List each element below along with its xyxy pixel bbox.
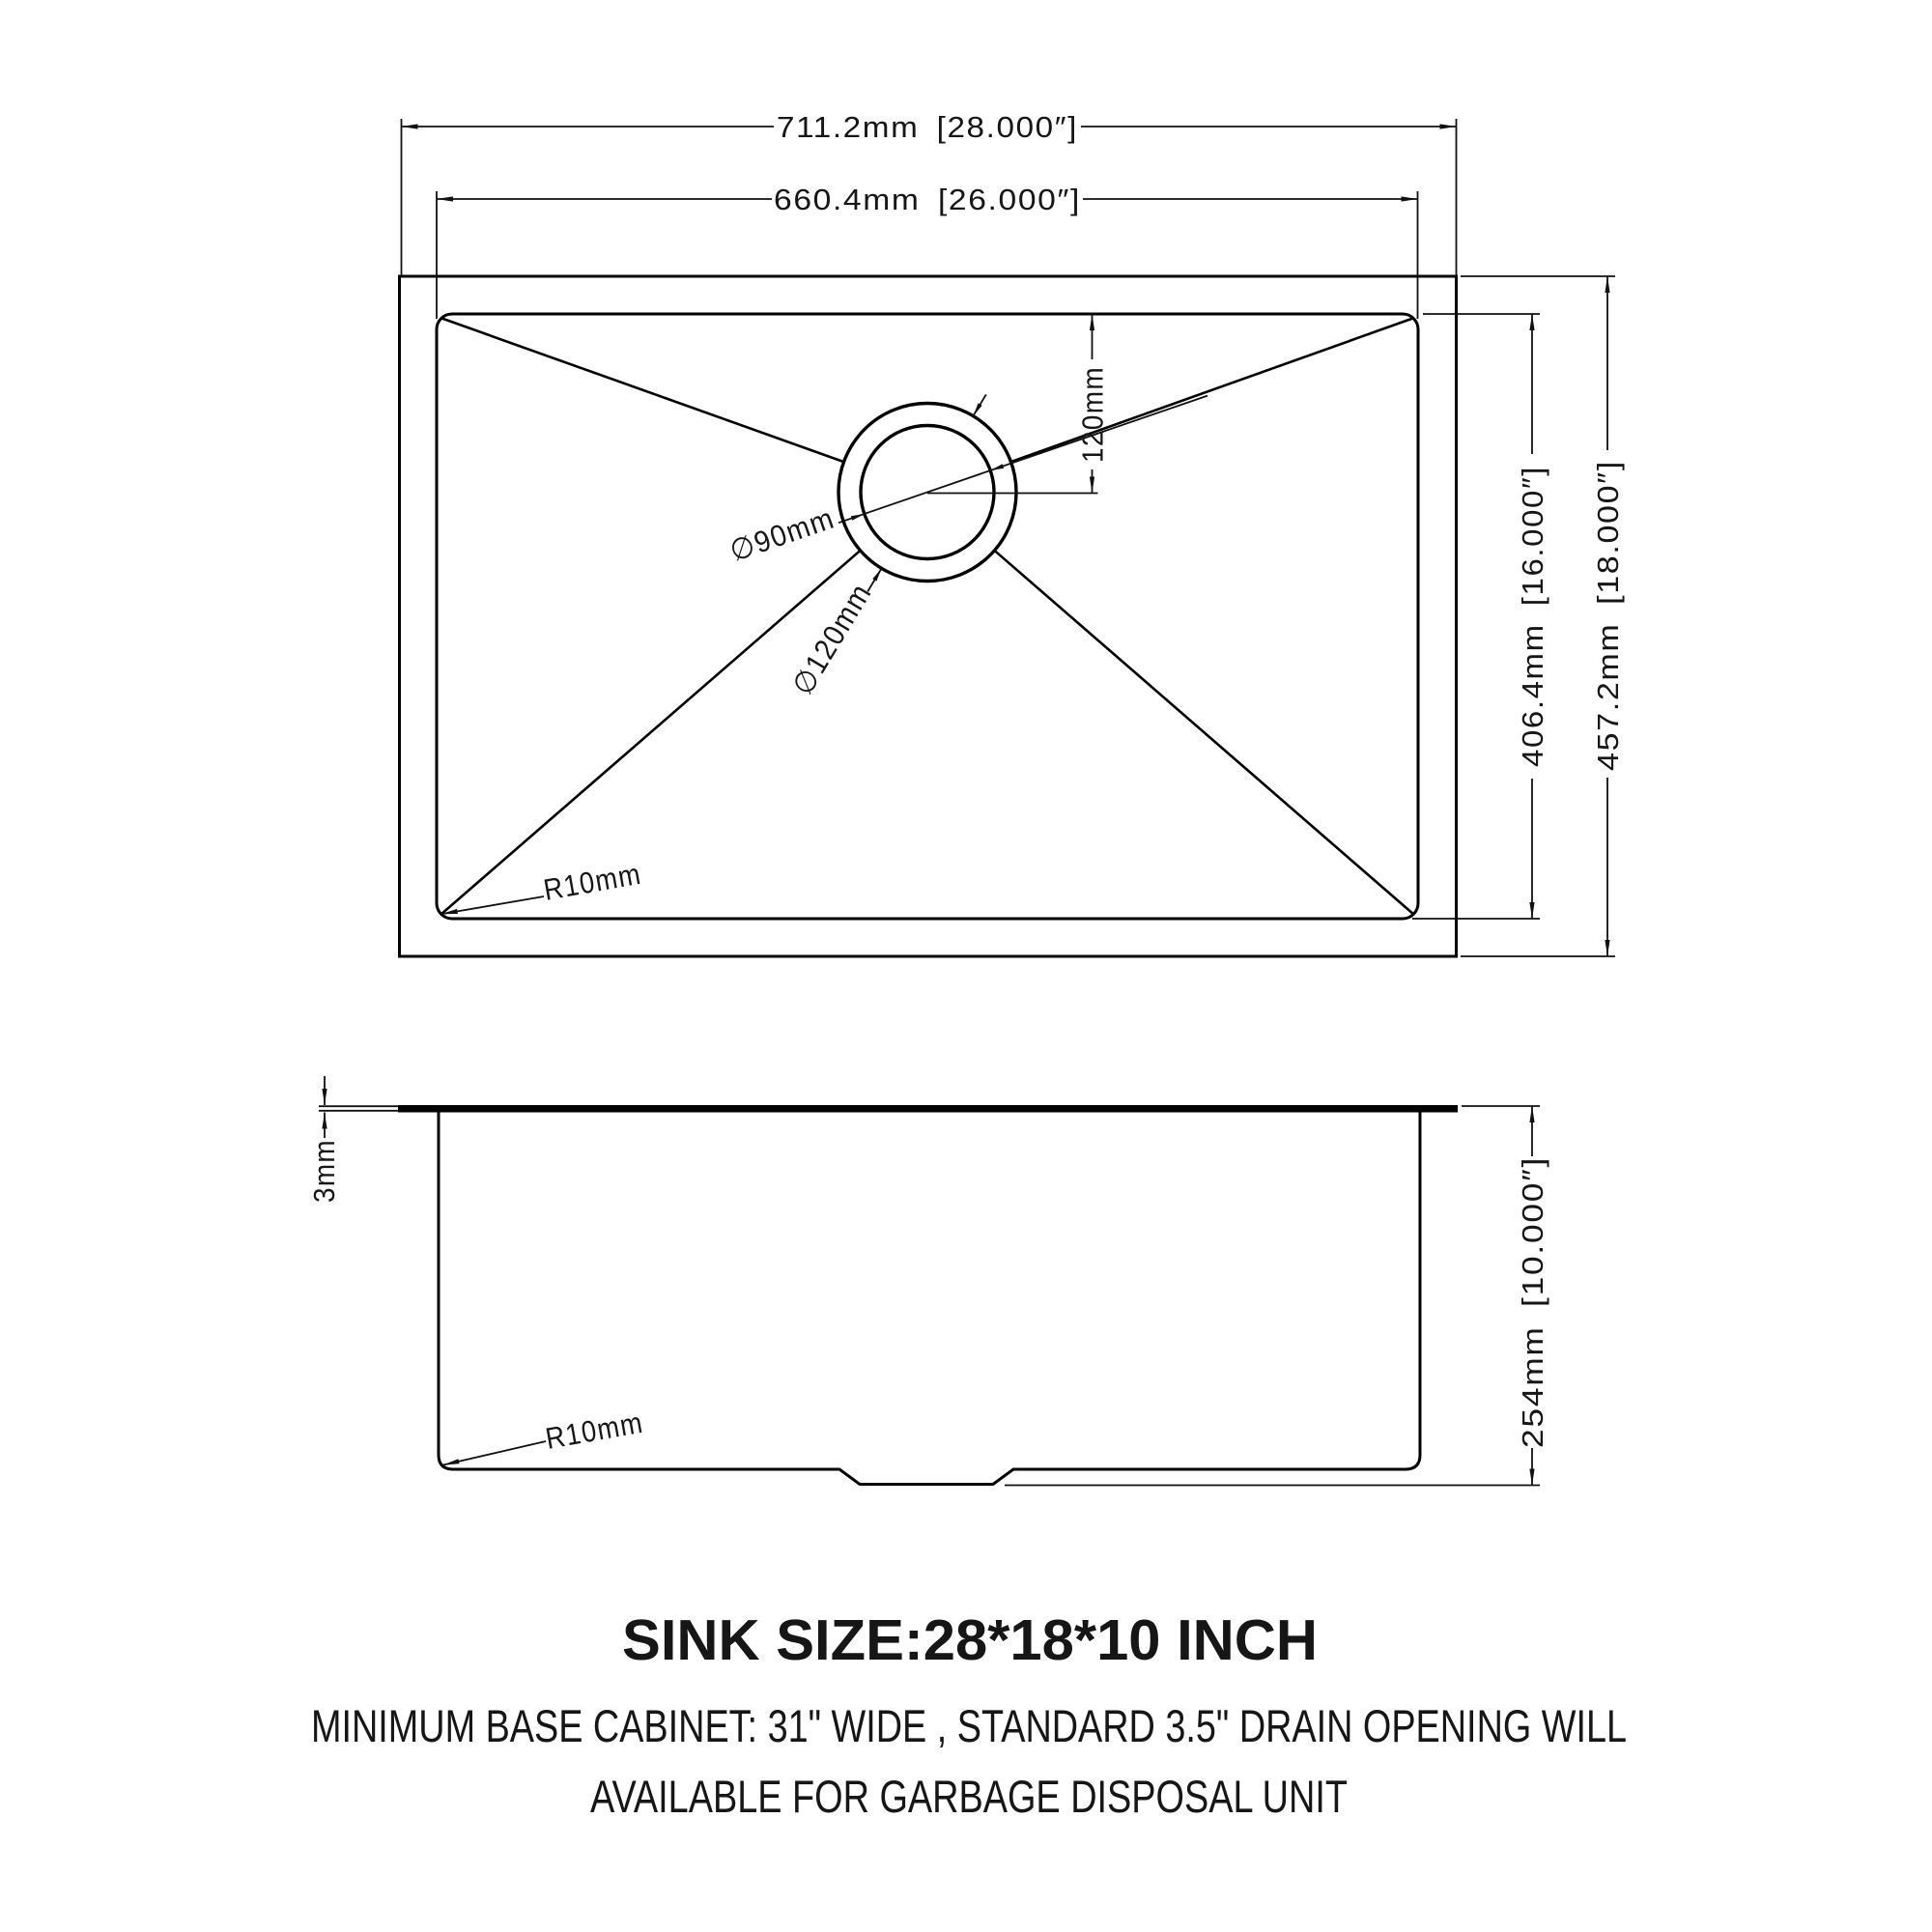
- svg-text:254mm [10.000″]: 254mm [10.000″]: [1516, 1156, 1549, 1448]
- svg-text:R10mm: R10mm: [543, 1406, 646, 1456]
- svg-text:406.4mm [16.000″]: 406.4mm [16.000″]: [1516, 466, 1549, 767]
- svg-text:457.2mm [18.000″]: 457.2mm [18.000″]: [1591, 460, 1625, 771]
- svg-text:∅120mm: ∅120mm: [785, 578, 878, 701]
- svg-text:R10mm: R10mm: [541, 857, 644, 907]
- svg-text:MINIMUM BASE CABINET: 31" WIDE: MINIMUM BASE CABINET: 31" WIDE , STANDAR…: [311, 1700, 1627, 1751]
- svg-text:711.2mm [28.000″]: 711.2mm [28.000″]: [777, 110, 1078, 144]
- svg-text:120mm: 120mm: [1076, 366, 1110, 463]
- svg-text:∅90mm: ∅90mm: [725, 501, 838, 569]
- svg-text:3mm: 3mm: [307, 1139, 341, 1203]
- svg-text:SINK SIZE:28*18*10 INCH: SINK SIZE:28*18*10 INCH: [622, 1608, 1318, 1672]
- svg-text:AVAILABLE FOR GARBAGE DISPOSAL: AVAILABLE FOR GARBAGE DISPOSAL UNIT: [590, 1771, 1348, 1822]
- svg-text:660.4mm [26.000″]: 660.4mm [26.000″]: [774, 183, 1081, 216]
